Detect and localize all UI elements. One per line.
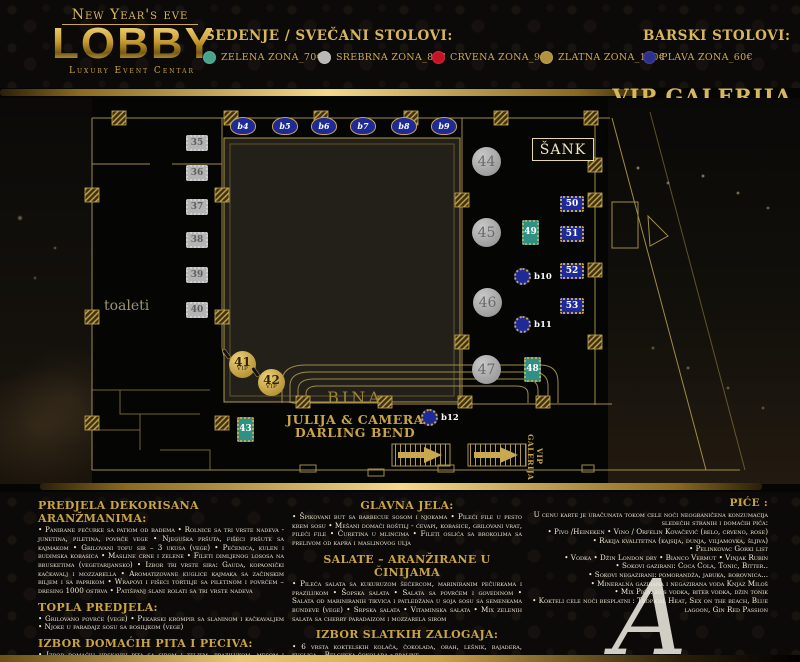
stage-label: BINA [300,388,410,407]
bar-table-b8[interactable]: b8 [391,117,417,135]
bar-table-b11[interactable]: b11 [514,316,552,333]
bar-tables-title: BARSKI STOLOVI: [643,28,790,44]
table-37[interactable]: 37 [186,199,208,215]
menu-body: • Pileća salata sa kukuruzom šećercom, m… [292,580,522,623]
table-36[interactable]: 36 [186,165,208,181]
gold-zone-dot-icon [540,51,553,64]
legend-zone-green: ZELENA ZONA_70€ [203,50,323,64]
table-45[interactable]: 45 [472,218,501,247]
bar-table-b6[interactable]: b6 [311,117,337,135]
band-name-line2: DARLING BEND [270,425,440,440]
table-35[interactable]: 35 [186,135,208,151]
table-46[interactable]: 46 [473,288,502,317]
table-38[interactable]: 38 [186,232,208,248]
bar-table-b9[interactable]: b9 [431,117,457,135]
legend-title: SEDENJE / SVEČANI STOLOVI: [205,28,453,44]
green-zone-dot-icon [203,51,216,64]
floor-plan: ŠANK toaleti BINA JULIJA & CAMERA DARLIN… [0,98,800,484]
drinks-heading: PIĆE : [520,497,768,510]
table-50[interactable]: 50 [560,196,584,212]
menu-body: • Panirane pečurke sa patiom od badema •… [38,526,284,595]
table-39[interactable]: 39 [186,267,208,283]
vip-table-41[interactable]: 41 VIP [229,351,256,378]
legend-zone-red: CRVENA ZONA_95€ [432,50,553,64]
toilets-label: toaleti [104,298,149,314]
menu-column-center: GLAVNA JELA: • Špikovani but sa barbecue… [292,494,522,660]
blue-zone-dot-icon [643,51,656,64]
vip-galerija-vertical-label: VIP GALERIJA [526,434,544,478]
table-circle [421,409,438,426]
menu-body: • Grilovano povrće (vege) • Pekarski kro… [38,615,284,632]
table-49[interactable]: 49 [522,220,539,245]
bar-table-b12[interactable]: b12 [421,409,459,426]
menu-column-left: PREDJELA DEKORISANA ARANŽMANIMA: • Panir… [38,494,284,662]
bar-counter-label: ŠANK [532,138,594,161]
signature-watermark: A [612,566,687,662]
logo-name: LOBBY [52,22,212,66]
menu-heading: IZBOR DOMAĆIH PITA I PECIVA: [38,637,284,650]
menu-heading: SALATE – ARANŽIRANE U ČINIJAMA [292,553,522,579]
table-circle [514,316,531,333]
menu-heading: TOPLA PREDJELA: [38,601,284,614]
bar-table-b7[interactable]: b7 [350,117,376,135]
table-43[interactable]: 43 [237,417,254,442]
table-48[interactable]: 48 [524,357,541,382]
table-51[interactable]: 51 [560,226,584,242]
table-52[interactable]: 52 [560,263,584,279]
bar-table-b5[interactable]: b5 [272,117,298,135]
legend-zone-silver: SREBRNA ZONA_85€ [318,50,446,64]
red-zone-dot-icon [432,51,445,64]
menu-heading: IZBOR SLATKIH ZALOGAJA: [292,628,522,641]
logo-subtitle: Luxury Event Centar [52,66,212,76]
menu-heading: PREDJELA DEKORISANA ARANŽMANIMA: [38,499,284,525]
table-44[interactable]: 44 [472,147,501,176]
table-53[interactable]: 53 [560,298,584,314]
bar-table-b10[interactable]: b10 [514,268,552,285]
drinks-intro: U cenu karte je uračunata tokom cele noć… [520,511,768,528]
table-47[interactable]: 47 [472,355,501,384]
header-band: New Year's eve LOBBY Luxury Event Centar… [0,0,800,88]
header-divider [0,89,655,96]
menu-body: • Špikovani but sa barbecue sosom i njok… [292,513,522,548]
legend-zone-blue: PLAVA ZONA_60€ [643,50,753,64]
footer-divider [40,483,762,490]
bar-table-b4[interactable]: b4 [230,117,256,135]
table-circle [514,268,531,285]
event-flyer: New Year's eve LOBBY Luxury Event Centar… [0,0,800,662]
silver-zone-dot-icon [318,51,331,64]
vip-table-42[interactable]: 42 VIP [258,369,285,396]
menu-heading: GLAVNA JELA: [292,499,522,512]
table-40[interactable]: 40 [186,302,208,318]
